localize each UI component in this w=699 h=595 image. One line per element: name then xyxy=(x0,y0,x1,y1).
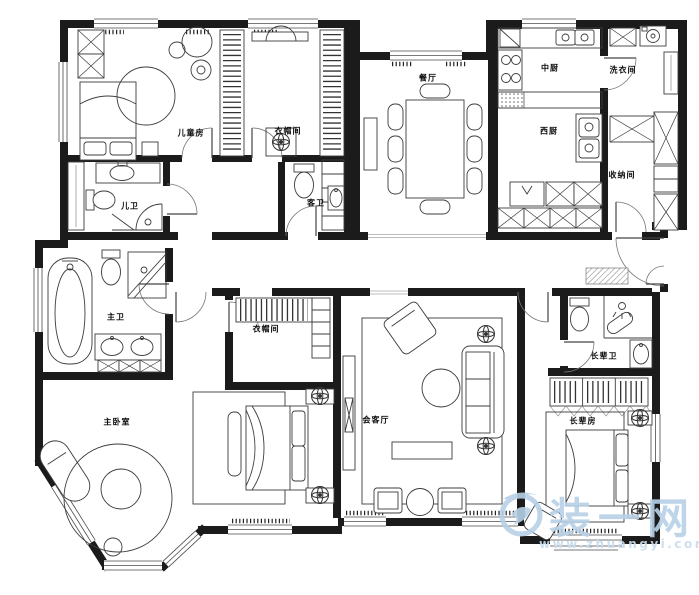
dining-room-furniture xyxy=(364,84,482,214)
master-hall-door xyxy=(176,292,206,322)
children-bath-fixtures xyxy=(68,161,162,230)
stool-icon xyxy=(374,488,402,513)
doormat-icon xyxy=(586,268,628,284)
cabinet-icon xyxy=(610,116,654,142)
vanity-cabinet-icon xyxy=(98,360,161,372)
basin-counter-icon xyxy=(96,161,160,183)
cabinet-icon xyxy=(654,194,678,230)
shaft-cabinet-icon xyxy=(654,112,678,164)
stove-icon xyxy=(498,50,522,90)
master-bath-fixtures xyxy=(48,250,166,372)
cabinet-row-icon xyxy=(498,208,602,228)
console-table-icon xyxy=(392,442,452,459)
tv-cabinet-icon xyxy=(343,356,355,470)
room-label-children-room: 儿童房 xyxy=(178,129,205,138)
room-label-guest-bath: 客卫 xyxy=(307,199,325,208)
guest-bath-door xyxy=(286,206,316,236)
plant-icon xyxy=(478,438,495,455)
coffee-table-icon xyxy=(422,369,460,407)
elder-bed-icon xyxy=(566,430,628,506)
wardrobe-icon xyxy=(220,30,244,156)
washing-machine-icon xyxy=(640,26,666,46)
room-label-storage-room: 收纳间 xyxy=(609,171,636,180)
side-table-icon xyxy=(407,489,434,516)
armchair-icon xyxy=(382,300,438,356)
shower-icon xyxy=(604,296,652,338)
floor-plan: 儿童房 衣帽间 餐厅 中厨 洗衣间 西厨 收纳间 儿卫 客卫 主卫 衣帽间 主卧… xyxy=(0,0,699,595)
shelf-icon xyxy=(654,166,678,192)
children-bath-door xyxy=(167,184,197,214)
room-label-children-bath: 儿卫 xyxy=(121,202,139,211)
shower-icon xyxy=(128,252,166,298)
hanging-rod-icon xyxy=(236,298,312,322)
tall-cabinet-icon xyxy=(664,52,678,94)
master-bed-icon xyxy=(246,406,308,490)
elder-room-furniture xyxy=(523,410,652,542)
cloakroom-master-furniture xyxy=(236,298,330,358)
room-label-elder-bath: 长辈卫 xyxy=(591,352,618,361)
fridge-icon xyxy=(500,29,520,47)
dining-table-icon xyxy=(406,100,464,198)
plant-icon xyxy=(478,326,495,343)
room-label-master-bedroom: 主卧室 xyxy=(104,418,131,427)
double-basin-icon xyxy=(95,334,161,360)
wardrobe-icon xyxy=(320,30,344,156)
room-label-western-kitchen: 西厨 xyxy=(540,127,558,136)
room-label-chinese-kitchen: 中厨 xyxy=(541,64,559,73)
cabinet-icon xyxy=(546,182,602,206)
room-label-laundry-room: 洗衣间 xyxy=(610,66,637,75)
bench-icon xyxy=(228,412,241,476)
bathtub-icon xyxy=(48,258,92,364)
sofa-icon xyxy=(462,346,504,438)
counter-divider-icon xyxy=(498,92,602,108)
basin-icon xyxy=(328,186,344,210)
double-sink-icon xyxy=(556,30,594,45)
shelf-column-icon xyxy=(312,298,330,358)
nightstand-icon xyxy=(306,388,334,405)
nightstand-icon xyxy=(628,410,652,427)
toilet-icon xyxy=(102,250,121,285)
toilet-icon xyxy=(86,190,115,210)
room-label-living-room: 会客厅 xyxy=(363,416,390,425)
floor-plan-drawing xyxy=(0,0,699,595)
elder-bath-door xyxy=(564,342,594,372)
plants-icon xyxy=(169,27,212,80)
floor-thresholds xyxy=(368,235,486,295)
island-sink-icon xyxy=(576,114,602,162)
children-room-furniture xyxy=(78,27,212,160)
room-label-cloakroom-master: 衣帽间 xyxy=(253,325,280,334)
dressing-table-icon xyxy=(252,32,308,41)
master-bath-door xyxy=(139,284,169,314)
room-label-elder-room: 长辈房 xyxy=(570,417,597,426)
elder-wardrobe-icon xyxy=(550,378,650,416)
room-label-cloakroom-north: 衣帽间 xyxy=(275,127,302,136)
wardrobe-cabinet-icon xyxy=(78,30,104,78)
laundry-fixtures xyxy=(610,26,678,94)
stool-icon xyxy=(438,488,466,513)
nightstand-icon xyxy=(306,487,334,504)
nightstand-icon xyxy=(628,503,652,520)
room-label-master-bath: 主卫 xyxy=(107,313,125,322)
children-bed-icon xyxy=(80,82,136,160)
sideboard-icon xyxy=(364,118,377,170)
toilet-icon xyxy=(294,164,314,198)
toilet-icon xyxy=(570,298,589,331)
cabinet-icon xyxy=(610,28,636,46)
basin-icon xyxy=(630,340,652,368)
room-label-dining-room: 餐厅 xyxy=(419,74,437,83)
storage-door xyxy=(616,202,646,232)
appliance-icon xyxy=(510,182,544,206)
living-room-furniture xyxy=(343,300,504,515)
nightstand-icon xyxy=(142,142,158,156)
